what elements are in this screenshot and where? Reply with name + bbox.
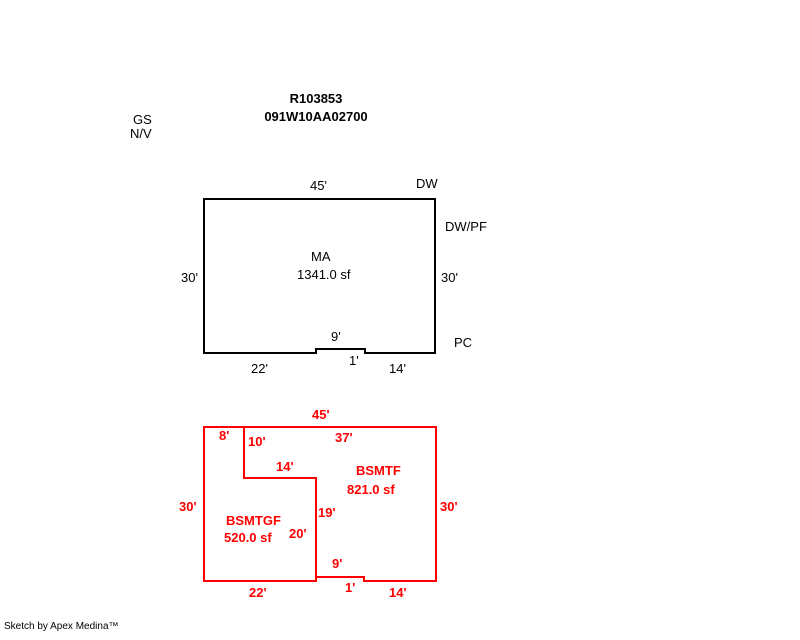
bsmt-dim-notch-width: 9' [332,557,342,571]
basement-divider-line [244,427,316,577]
parcel-id: 091W10AA02700 [216,110,416,124]
record-id: R103853 [216,92,416,106]
main-annotation-dwpf: DW/PF [445,220,487,234]
bsmt-dim-left: 30' [179,500,197,514]
bsmt-dim-right: 30' [440,500,458,514]
main-annotation-dw: DW [416,177,438,191]
nv-label: N/V [130,127,152,141]
main-dim-top: 45' [310,179,327,193]
sketch-credit: Sketch by Apex Medina™ [4,621,119,632]
sketch-canvas: R103853 091W10AA02700 GS N/V 45' DW DW/P… [0,0,800,640]
bsmt-dim-divider-mid: 19' [318,506,336,520]
main-annotation-pc: PC [454,336,472,350]
bsmt-dim-bottom-left: 22' [249,586,267,600]
bsmt-dim-top-main-seg: 37' [335,431,353,445]
main-dim-left: 30' [181,271,198,285]
bsmtf-name: BSMTF [356,464,401,478]
bsmt-dim-divider-h: 14' [276,460,294,474]
bsmt-dim-top: 45' [312,408,330,422]
main-area-sf: 1341.0 sf [297,268,351,282]
main-dim-notch-depth: 1' [349,354,359,368]
bsmt-dim-divider-upper: 10' [248,435,266,449]
bsmtf-area-sf: 821.0 sf [347,483,395,497]
basement-outline [204,427,436,581]
main-dim-bottom-right: 14' [389,362,406,376]
main-area-name: MA [311,250,331,264]
bsmt-dim-divider-lower: 20' [289,527,307,541]
bsmtgf-area-sf: 520.0 sf [224,531,272,545]
main-dim-bottom-left: 22' [251,362,268,376]
bsmt-dim-bottom-right: 14' [389,586,407,600]
bsmtgf-name: BSMTGF [226,514,281,528]
bsmt-dim-notch-depth: 1' [345,581,355,595]
gs-label: GS [133,113,152,127]
main-dim-notch-width: 9' [331,330,341,344]
main-dim-right: 30' [441,271,458,285]
bsmt-dim-top-left-seg: 8' [219,429,229,443]
